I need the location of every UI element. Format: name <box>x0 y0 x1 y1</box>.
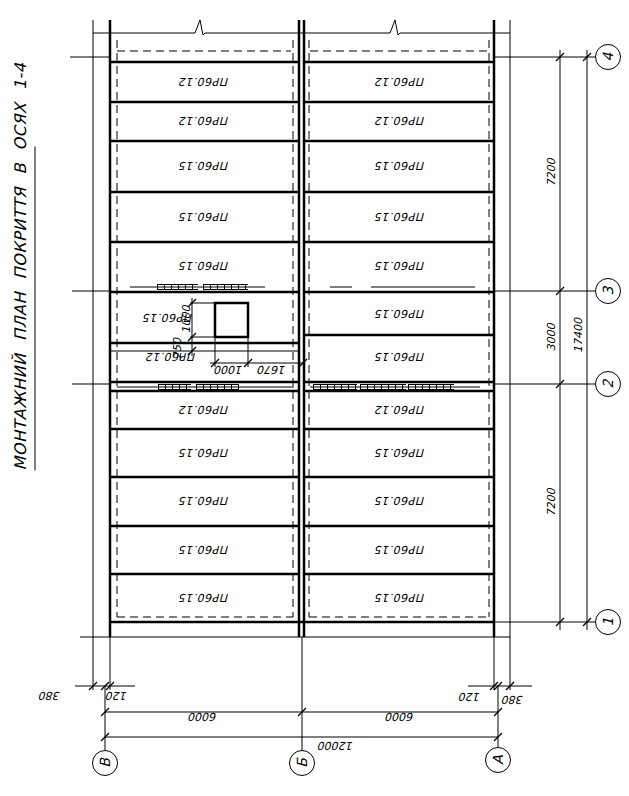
axis-circle-a: А <box>485 747 511 773</box>
joint-plates-row <box>196 384 239 390</box>
joint-plates-row <box>203 284 248 290</box>
axis-circle-2: 2 <box>595 371 621 397</box>
panel-label: ПР60.12 <box>355 403 445 416</box>
dim-right-7200-bottom: 7200 <box>545 471 558 535</box>
axis-circle-1: 1 <box>595 609 621 635</box>
axis-label-2: 2 <box>600 380 616 389</box>
panel-label: ПР60.15 <box>355 446 445 459</box>
panel-label: ПР60.15 <box>159 259 249 272</box>
axis-label-a: А <box>490 755 506 765</box>
axis-label-1: 1 <box>600 618 616 627</box>
axis-label-3: 3 <box>600 287 616 296</box>
panel-label: ПР60.15 <box>355 350 445 363</box>
axis-circle-4: 4 <box>595 44 621 70</box>
panel-label: ПР60.15 <box>355 159 445 172</box>
axis-label-4: 4 <box>600 53 616 62</box>
dim-opening-gap: 250 <box>171 317 184 381</box>
panel-label: ПР60.15 <box>355 259 445 272</box>
panel-label: ПР60.15 <box>159 210 249 223</box>
panel-label: ПР60.15 <box>159 159 249 172</box>
panel-label: ПР60.12 <box>355 114 445 127</box>
axis-circle-v: В <box>92 750 118 776</box>
panel-label: ПР60.15 <box>159 591 249 604</box>
dim-bay-left: 6000 <box>175 710 231 723</box>
dim-bottom-total: 12000 <box>308 739 364 752</box>
panel-label: ПР60.15 <box>355 210 445 223</box>
dim-bottom-380-left: 380 <box>22 689 78 702</box>
joint-plates-row <box>313 384 357 390</box>
panel-label: ПР60.12 <box>355 75 445 88</box>
panel-label: ПР60.15 <box>355 543 445 556</box>
dim-right-7200-top: 7200 <box>545 141 558 205</box>
dim-right-3000: 3000 <box>545 306 558 370</box>
drawing-title: МОНТАЖНИЙ ПЛАН ПОКРИТТЯ В ОСЯХ 1-4 <box>11 147 36 471</box>
axis-circle-b: Б <box>289 750 315 776</box>
panel-label: ПР60.15 <box>355 591 445 604</box>
panel-label: ПР60.15 <box>159 446 249 459</box>
panel-label: ПР60.15 <box>159 543 249 556</box>
panel-label: ПР60.12 <box>159 114 249 127</box>
panel-label: ПР60.15 <box>355 494 445 507</box>
plan-linework <box>0 0 629 796</box>
axis-circle-3: 3 <box>595 278 621 304</box>
dim-opening-offset: 1670 <box>244 363 300 376</box>
panel-label: ПР60.12 <box>159 403 249 416</box>
axis-label-b: Б <box>294 758 310 768</box>
dimension-ticks <box>89 53 591 741</box>
joint-plates-row <box>158 384 191 390</box>
axis-label-v: В <box>97 758 113 768</box>
dim-bottom-120-left: 120 <box>89 689 145 702</box>
drawing-sheet: МОНТАЖНИЙ ПЛАН ПОКРИТТЯ В ОСЯХ 1-4 ПР60.… <box>0 0 629 796</box>
panel-label: ПР60.15 <box>123 311 213 324</box>
dim-bottom-380-right: 380 <box>485 693 541 706</box>
panel-label: ПР60.12 <box>159 75 249 88</box>
dim-right-total: 17400 <box>572 304 585 368</box>
panel-label: ПР60.15 <box>159 494 249 507</box>
joint-plates-row <box>408 384 454 390</box>
dim-bay-right: 6000 <box>372 710 428 723</box>
panel-label: ПР60.15 <box>355 307 445 320</box>
joint-plates-row <box>360 384 406 390</box>
